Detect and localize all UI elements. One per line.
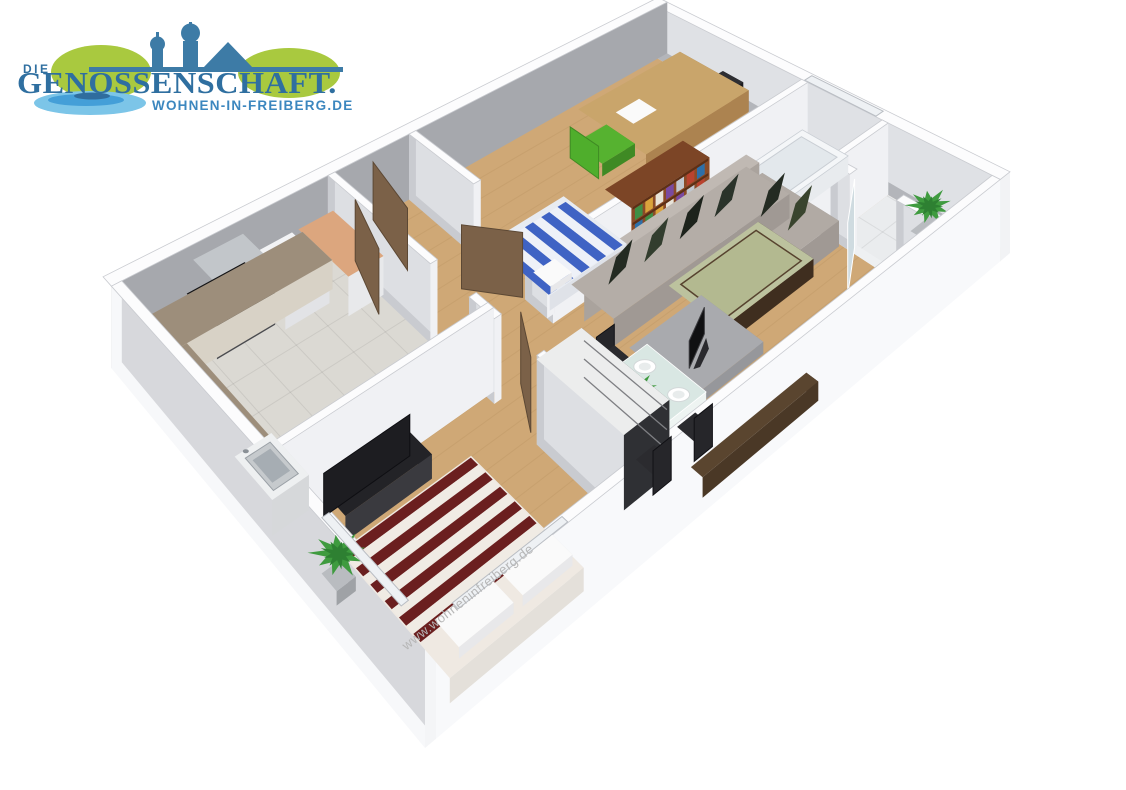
page: DIE GENOSSENSCHAFT. WOHNEN-IN-FREIBERG.D…	[0, 0, 1126, 790]
logo-title-text: GENOSSENSCHAFT.	[17, 65, 337, 101]
door-leaf-study	[462, 225, 523, 298]
logo-domain-text: WOHNEN-IN-FREIBERG.DE	[152, 98, 353, 113]
company-logo: DIE GENOSSENSCHAFT. WOHNEN-IN-FREIBERG.D…	[6, 18, 374, 128]
